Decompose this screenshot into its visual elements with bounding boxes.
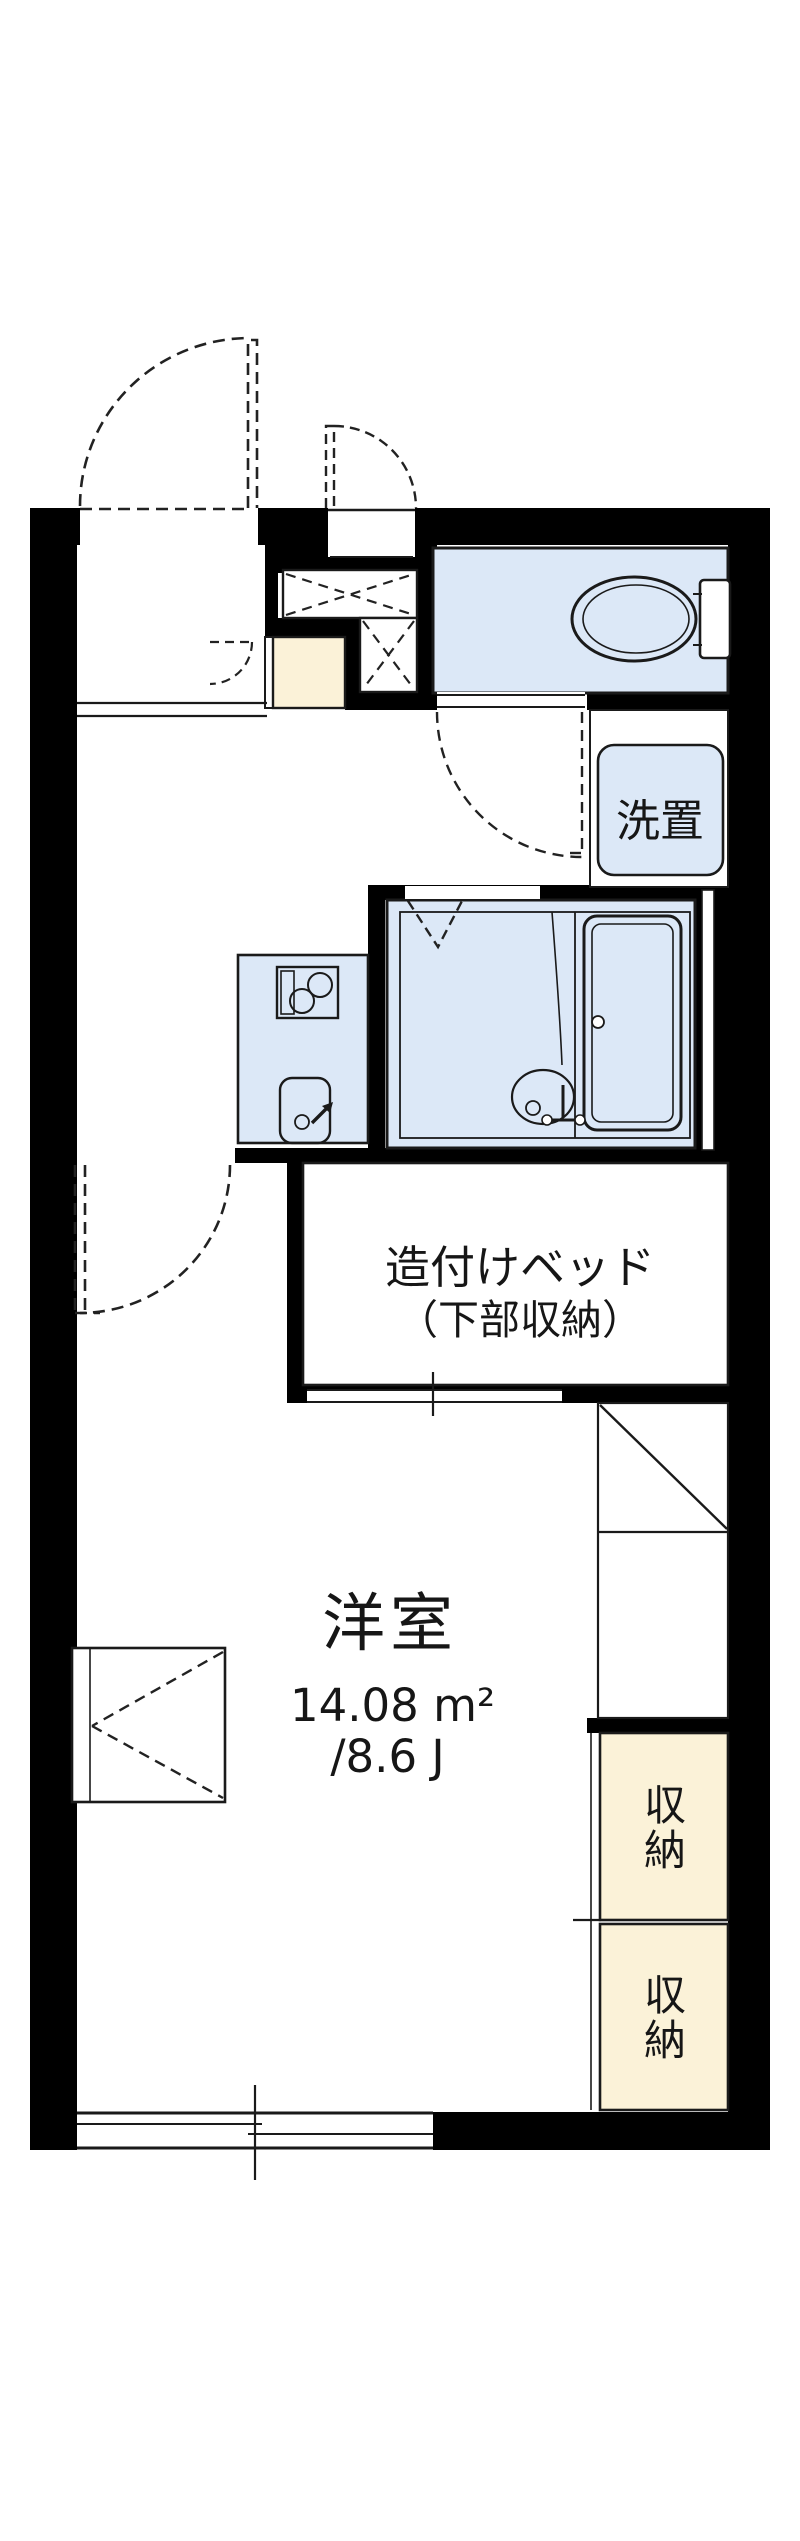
genkan-step <box>265 637 273 708</box>
toilet-door <box>437 712 582 857</box>
storage-lower-label: 収納 <box>640 1973 690 2064</box>
fridge-niche <box>598 1403 728 1718</box>
bed-label-line2: （下部収納） <box>320 1297 720 1344</box>
washer-label: 洗置 <box>590 797 730 848</box>
entrance-opening <box>80 512 258 545</box>
main-room-name: 洋室 <box>215 1588 565 1660</box>
bed-front-opening <box>307 1390 562 1402</box>
outdoor-storage-door <box>326 426 416 508</box>
pipe-space <box>702 890 714 1150</box>
genkan-closet-door <box>210 642 252 684</box>
storage-door-opening <box>328 511 415 557</box>
bed-label-line1: 造付けベッド <box>320 1242 720 1294</box>
storage-upper-label: 収納 <box>640 1783 690 1874</box>
main-room-area-sqm: 14.08 m² <box>230 1680 555 1732</box>
genkan-tile <box>273 637 345 708</box>
bath-room <box>387 900 695 1148</box>
entrance-door <box>80 338 257 508</box>
floor-plan: 洗置 造付けベッド （下部収納） 洋室 14.08 m² /8.6 J 収納 収… <box>0 0 800 2541</box>
toilet-room <box>433 548 728 693</box>
main-room-area-jo: /8.6 J <box>225 1731 550 1783</box>
bath-door-opening <box>405 886 540 899</box>
entry-closet-upper <box>283 570 417 618</box>
main-room-door <box>75 1165 230 1313</box>
